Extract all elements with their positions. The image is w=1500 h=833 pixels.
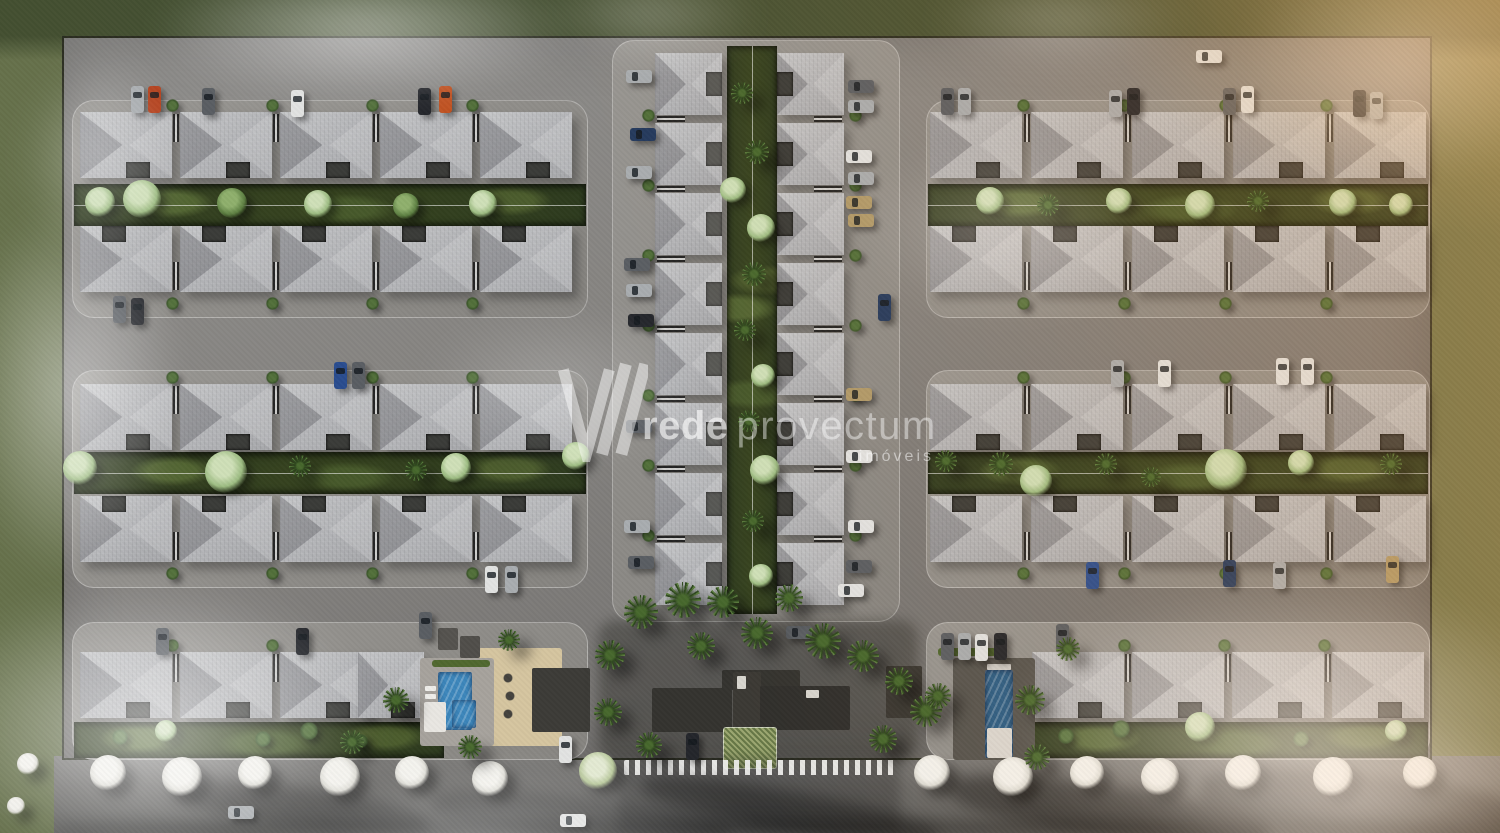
carport-slats [657,256,685,262]
parking-bush [1017,99,1030,112]
backyard-fence-line [74,473,586,474]
patio-notch [706,562,722,586]
car [560,814,586,827]
car-windshield [852,562,858,571]
patio-notch [102,226,126,242]
patio-notch [126,162,150,178]
parking-bush [466,371,479,384]
carport-slats [1226,532,1232,560]
patio-notch [202,496,226,512]
car-windshield [1303,364,1312,370]
patio-notch [226,162,250,178]
car [686,733,699,760]
car-windshield [487,572,496,578]
patio-notch [326,702,350,718]
palm-tree [775,584,803,612]
parking-bush [642,389,655,402]
car-windshield [634,316,640,325]
garden-bush [1293,731,1309,747]
parking-bush [1320,371,1333,384]
house-roof [930,384,1022,450]
carport-slats [173,114,179,142]
patio-notch [976,434,1000,450]
palm-tree [687,632,715,660]
house-roof [1233,226,1325,292]
tree-light-green [1106,188,1132,214]
tree-light-green [976,187,1004,215]
patio-notch [1154,496,1178,512]
car-windshield [943,639,952,645]
patio-notch [126,702,150,718]
house-roof [80,496,172,562]
tree-light-green [1288,450,1314,476]
tree-light-green [1020,465,1052,497]
house-roof [180,652,272,718]
palm-tree [707,586,739,618]
car-windshield [852,452,858,461]
pool-canopy [987,728,1012,758]
palm-tree [458,735,482,759]
car-windshield [632,168,638,177]
car [334,362,347,389]
carport-slats [657,116,685,122]
carport-slats [1327,114,1333,142]
flowering-tree-white [395,756,429,790]
car [624,258,650,271]
patio-notch [706,352,722,376]
parking-bush [1218,639,1231,652]
patio-notch [706,212,722,236]
car [202,88,215,115]
carport-slats [273,654,279,682]
flowering-tree-pale [579,752,617,790]
carport-slats [473,114,479,142]
car-windshield [566,816,572,825]
patio-notch [952,496,976,512]
parking-bush [1318,639,1331,652]
house-roof [80,384,172,450]
patio-notch [777,282,793,306]
tree-light-green [1389,193,1413,217]
car-windshield [632,72,638,81]
tree-light-green [85,187,115,217]
house-roof [777,53,844,115]
tree-light-green [750,455,780,485]
cabana-roof [460,636,480,658]
car [630,128,656,141]
car-windshield [630,260,636,269]
patio-notch [952,226,976,242]
car [419,612,432,639]
carport-slats [814,186,842,192]
carport-slats [373,114,379,142]
car-windshield [852,390,858,399]
car [958,88,971,115]
tree-light-green [304,190,332,218]
carport-slats [1225,654,1231,682]
palm-tree [885,667,913,695]
patio-notch [226,434,250,450]
house-roof [655,263,722,325]
flowering-tree-white [17,753,39,775]
carport-slats [1327,386,1333,414]
carport-slats [1325,654,1331,682]
pedestrian-crosswalk [624,760,898,775]
parking-bush [1219,371,1232,384]
car-windshield [792,628,798,637]
palm-tree [595,640,625,670]
tree-green [217,188,247,218]
parking-bush [642,109,655,122]
house-roof [777,263,844,325]
patio-notch [976,162,1000,178]
house-roof [180,226,272,292]
aerial-condominium-render: redeprovectum imóveis [0,0,1500,833]
carport-slats [173,262,179,290]
car [848,172,874,185]
skylight [806,690,819,698]
house-roof [480,112,572,178]
car [291,90,304,117]
patio-notch [226,702,250,718]
car [626,284,652,297]
carport-slats [657,466,685,472]
parking-bush [266,371,279,384]
car-windshield [854,522,860,531]
skylight [737,676,746,689]
patio-notch [706,422,722,446]
parking-bush [166,371,179,384]
flowering-tree-white [1403,756,1437,790]
hedge [432,660,490,667]
lounger [425,686,436,691]
car-windshield [1275,568,1284,574]
palm-tree [805,623,841,659]
patio-notch [502,496,526,512]
palm-tree [289,455,311,477]
car-windshield [133,304,142,310]
garden-bush [1112,720,1130,738]
car-windshield [1225,94,1234,100]
parking-bush [266,99,279,112]
carport-slats [657,536,685,542]
palm-tree [847,640,879,672]
car [838,584,864,597]
car-windshield [634,558,640,567]
car-windshield [1058,630,1067,636]
car-windshield [298,634,307,640]
car [418,88,431,115]
car-windshield [943,94,952,100]
car-windshield [852,152,858,161]
palm-tree [1095,453,1117,475]
house-roof [280,112,372,178]
parking-bush [1320,567,1333,580]
house-roof [80,652,172,718]
car-windshield [293,96,302,102]
carport-slats [1125,654,1131,682]
backyard-green-strip [1028,722,1428,758]
car-windshield [996,639,1005,645]
house-roof [655,193,722,255]
house-roof [777,333,844,395]
patio-notch [1356,496,1380,512]
patio-notch [302,496,326,512]
carport-slats [273,114,279,142]
house-roof [1334,112,1426,178]
parking-bush [1118,567,1131,580]
patio-notch [1053,496,1077,512]
palm-tree [734,319,756,341]
palm-tree [741,617,773,649]
carport-slats [173,654,179,682]
house-roof [180,112,272,178]
house-roof [1132,496,1224,562]
car [131,298,144,325]
car-windshield [204,94,213,100]
car [878,294,891,321]
house-roof [180,496,272,562]
parking-bush [1118,639,1131,652]
house-roof [280,384,372,450]
parking-bush [1017,567,1030,580]
house-roof [180,384,272,450]
house-roof [930,226,1022,292]
patio-notch [1255,496,1279,512]
carport-slats [1024,386,1030,414]
car [1370,92,1383,119]
house-roof [655,53,722,115]
patio-notch [777,492,793,516]
carport-slats [1327,532,1333,560]
backyard-green-strip [74,452,586,494]
car [131,86,144,113]
patio-notch [502,226,526,242]
palm-tree [869,725,897,753]
car-windshield [960,94,969,100]
parking-bush [1017,297,1030,310]
car [228,806,254,819]
house-roof [777,193,844,255]
parking-bush [1118,297,1131,310]
carport-slats [1125,386,1131,414]
car [1086,562,1099,589]
house-roof [1232,652,1324,718]
carport-slats [373,532,379,560]
car [1273,562,1286,589]
house-roof [1031,112,1123,178]
parking-bush [466,99,479,112]
parking-bush [366,567,379,580]
patio-notch [426,434,450,450]
car-windshield [630,522,636,531]
house-roof [480,384,572,450]
carport-slats [373,262,379,290]
house-roof [655,333,722,395]
car-windshield [158,634,167,640]
palm-tree [665,582,701,618]
car-windshield [880,300,889,306]
car [1111,360,1124,387]
car [296,628,309,655]
palm-tree [1247,190,1269,212]
car [1127,88,1140,115]
car-windshield [852,198,858,207]
parking-bush [266,567,279,580]
carport-slats [473,532,479,560]
patio-notch [777,72,793,96]
house-roof [280,496,372,562]
car [846,196,872,209]
parking-bush [1017,371,1030,384]
patio-notch [426,162,450,178]
parking-bush [366,99,379,112]
car [156,628,169,655]
patio-notch [402,226,426,242]
patio-notch [777,212,793,236]
car [1158,360,1171,387]
house-roof [380,112,472,178]
tree-light-green [63,451,97,485]
carport-slats [657,326,685,332]
tree-light-green [155,720,177,742]
gatehouse-roof [760,686,850,730]
parking-bush [366,297,379,310]
car-windshield [1225,566,1234,572]
carport-slats [814,466,842,472]
patio-notch [526,434,550,450]
patio-notch [1279,434,1303,450]
carport-slats [1327,262,1333,290]
car-windshield [632,286,638,295]
house-roof [1132,384,1224,450]
flowering-tree-white [238,756,272,790]
car-windshield [977,640,986,646]
car-windshield [844,586,850,595]
carport-slats [273,262,279,290]
car-windshield [234,808,240,817]
patio-notch [777,562,793,586]
house-roof [777,403,844,465]
palm-tree [624,595,658,629]
car-windshield [336,368,345,374]
car-windshield [636,130,642,139]
car [559,736,572,763]
house-roof [655,473,722,535]
house-roof [655,403,722,465]
car-windshield [1202,52,1208,61]
car [628,556,654,569]
tree-light-green [469,190,497,218]
patio-notch [526,162,550,178]
palm-tree [594,698,622,726]
house-roof [1233,112,1325,178]
carport-slats [473,262,479,290]
car-windshield [1088,568,1097,574]
carport-slats [273,532,279,560]
car [352,362,365,389]
car-windshield [1111,96,1120,102]
car-windshield [150,92,159,98]
patio-notch [706,282,722,306]
carport-slats [814,396,842,402]
car [624,520,650,533]
carport-slats [814,256,842,262]
car-windshield [688,739,697,745]
parking-bush [849,319,862,332]
tree-light-green [441,453,471,483]
parking-bush [642,179,655,192]
house-roof [1031,496,1123,562]
patio-notch [777,352,793,376]
tree-light-green [1185,712,1215,742]
palm-tree [742,510,764,532]
car [626,70,652,83]
patio-notch [326,162,350,178]
flowering-tree-white [90,755,126,791]
house-roof [1032,652,1124,718]
house-roof [777,123,844,185]
car-windshield [441,92,450,98]
car-windshield [420,94,429,100]
house-roof [1233,496,1325,562]
house-roof [930,112,1022,178]
palm-tree [989,452,1013,476]
house-roof [80,112,172,178]
patio-notch [1378,702,1402,718]
patio-notch [302,226,326,242]
car-windshield [1372,98,1381,104]
carport-slats [1125,532,1131,560]
car [1386,556,1399,583]
carport-slats [814,536,842,542]
palm-tree [738,410,760,432]
car [941,88,954,115]
car-windshield [854,216,860,225]
car [1109,90,1122,117]
house-roof [930,496,1022,562]
house-roof [1334,496,1426,562]
car-windshield [1355,96,1364,102]
swimming-pool [452,700,476,728]
car [1223,88,1236,115]
house-roof [655,123,722,185]
tree-light-green [1205,449,1247,491]
parking-bush [466,297,479,310]
flowering-tree-white [162,757,202,797]
parking-bush [166,99,179,112]
carport-slats [173,532,179,560]
car [1241,86,1254,113]
patio-notch [777,422,793,446]
tree-light-green [1385,720,1407,742]
palm-tree [1015,685,1045,715]
clubhouse-roof [532,668,590,732]
car [975,634,988,661]
car [848,100,874,113]
palm-tree [1037,194,1059,216]
palm-tree [498,629,520,651]
patio-umbrella [505,691,515,701]
patio-notch [1077,434,1101,450]
tree-light-green [562,442,590,470]
patio-notch [402,496,426,512]
parking-bush [1320,297,1333,310]
car [846,388,872,401]
palm-tree [742,262,766,286]
carport-slats [1226,262,1232,290]
car [846,450,872,463]
